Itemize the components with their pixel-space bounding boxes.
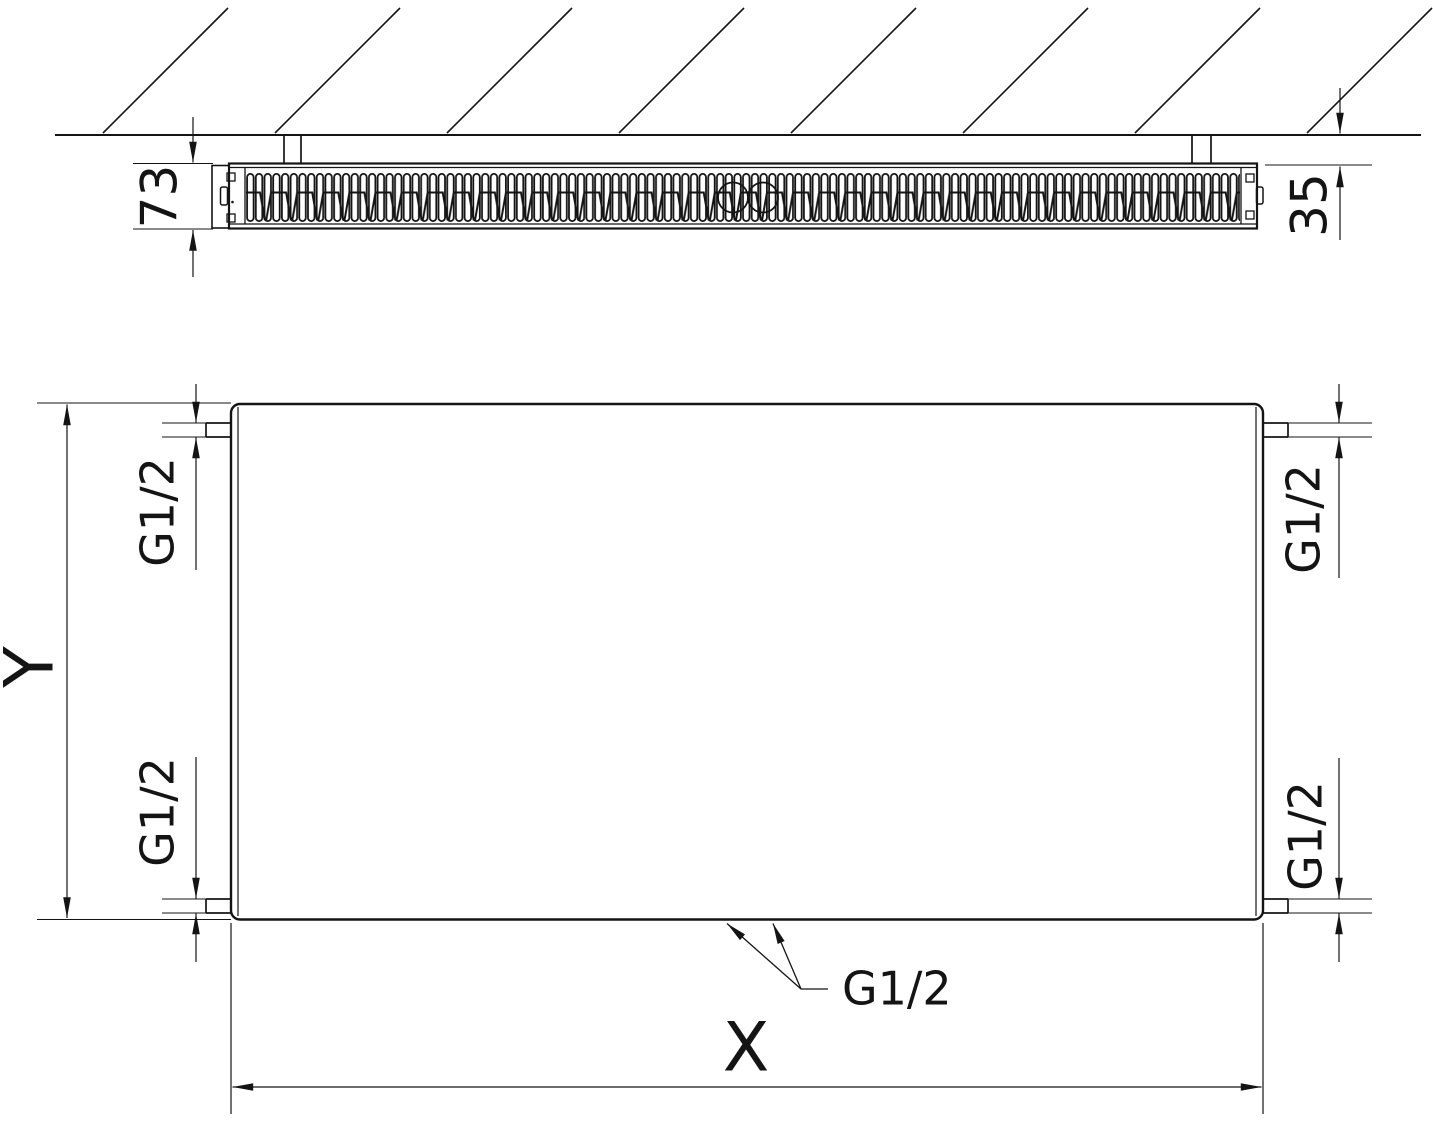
radiator-top-view [212,164,1263,229]
connection-stubs [206,423,1288,913]
thread-label-bottom-center: G1/2 [842,962,952,1016]
radiator-front-view [231,404,1263,920]
radiator-panel [231,404,1263,920]
wall-gap-dimension-label: 35 [1281,173,1339,237]
width-dimension-label: X [723,1008,770,1087]
dimension-thread-bottom-left: G1/2 [131,757,231,962]
connection-stub-top-right [1263,423,1288,437]
wall [55,8,1432,135]
dimension-wall-gap: 35 [1265,88,1372,240]
wall-brackets [284,136,1211,164]
radiator-dimension-drawing: 73 35 G1/2 [0,0,1433,1125]
dimension-thread-top-left: G1/2 [131,384,231,570]
connection-stub-bottom-left [206,899,231,913]
thread-label-bottom-left: G1/2 [131,757,185,867]
technical-drawing-radiator: 73 35 G1/2 [0,0,1433,1125]
bottom-center-connections-leader: G1/2 [727,924,952,1016]
end-cap-left-dot [231,201,234,204]
dimension-thread-bottom-right: G1/2 [1263,758,1372,962]
thread-label-top-left: G1/2 [131,457,185,567]
connection-stub-bottom-right [1263,899,1288,913]
connection-stub-top-left [206,423,231,437]
thread-label-bottom-right: G1/2 [1279,781,1333,891]
dimension-depth: 73 [131,117,214,277]
depth-dimension-label: 73 [131,165,189,229]
clip-bottom-right [1246,211,1254,219]
thread-label-top-right: G1/2 [1277,464,1331,574]
height-dimension-label: Y [0,646,69,689]
wall-hatching [103,8,1432,133]
end-cap-left-tab [221,187,228,205]
clip-top-right [1246,174,1254,182]
convector-fins [246,173,1240,222]
dimension-thread-top-right: G1/2 [1263,384,1372,578]
dimension-width: X [231,923,1263,1114]
